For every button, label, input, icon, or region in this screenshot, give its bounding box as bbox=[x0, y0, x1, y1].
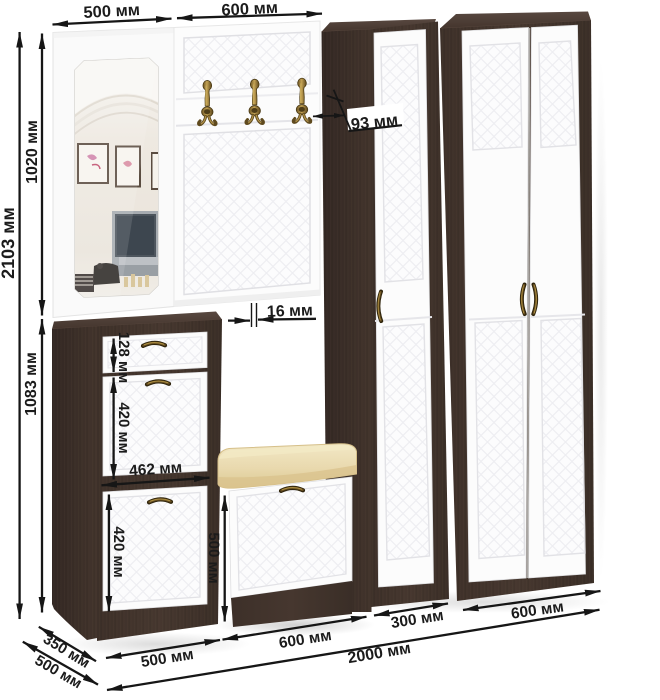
svg-text:420 мм: 420 мм bbox=[110, 526, 127, 577]
svg-text:500 мм: 500 мм bbox=[83, 1, 140, 22]
svg-text:2103 мм: 2103 мм bbox=[0, 207, 18, 279]
svg-text:1083 мм: 1083 мм bbox=[23, 352, 40, 416]
svg-text:128 мм: 128 мм bbox=[115, 332, 132, 383]
svg-text:500 мм: 500 мм bbox=[205, 532, 222, 583]
svg-text:16 мм: 16 мм bbox=[267, 302, 313, 321]
svg-text:600 мм: 600 мм bbox=[221, 0, 278, 20]
svg-text:1020 мм: 1020 мм bbox=[24, 120, 41, 184]
svg-text:420 мм: 420 мм bbox=[115, 402, 132, 453]
